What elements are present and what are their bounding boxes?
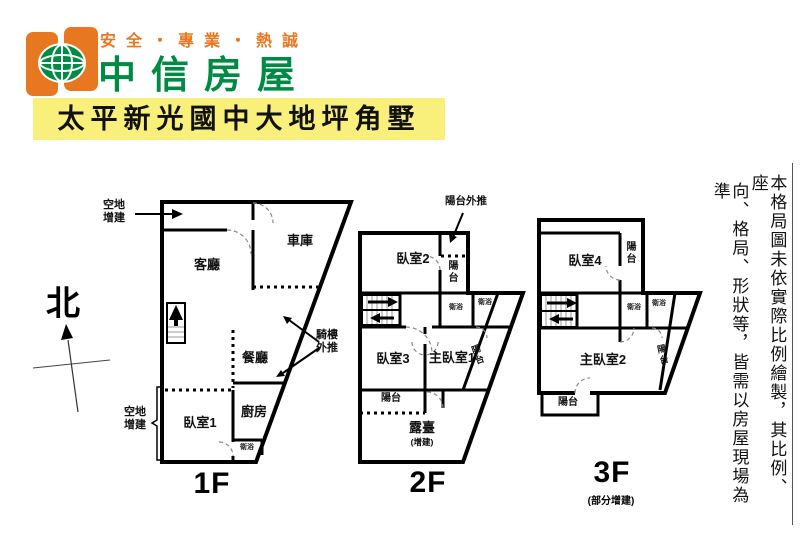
room-label-bedroom2: 臥室2 [381,252,445,266]
room-label-balcony-low: 陽台 [549,397,587,408]
floor-sublabel-3f: (部分增建) [563,492,659,507]
annotation-annex-top: 空地增建 [101,199,127,225]
brand-logo-icon [24,24,108,100]
room-label-bath: 衛浴 [232,444,262,451]
annotation-balcony-push: 陽台外推 [438,195,494,208]
room-label-bedroom1: 臥室1 [168,416,232,430]
room-label-balcony-top: 陽台 [624,241,634,279]
room-label-balcony-low: 陽台 [372,393,410,404]
room-label-bath-b: 衛浴 [646,300,672,307]
room-label-bath-a: 衛浴 [443,304,469,311]
floorplan-3f: 臥室4 陽台 衛浴 衛浴 主臥室2 陽台 陽台 3F (部分增建) [535,210,710,510]
listing-title: 太平新光國中大地坪角墅 [33,98,445,140]
room-label-bedroom4: 臥室4 [553,254,617,268]
listing-title-bar: 太平新光國中大地坪角墅 [33,98,445,140]
room-label-living: 客廳 [176,258,238,272]
annex-bracket [152,387,161,460]
floor-label-3f: 3F [581,456,643,490]
room-label-balcony-top: 陽台 [446,260,456,298]
annotation-arcade-push: 騎樓外推 [314,329,340,355]
floor-label-2f: 2F [397,466,459,500]
disclaimer-column-right: 本格局圖未依實際比例繪製，其比例、座 [748,174,785,506]
disclaimer-column-left: 向、格局、形狀等，皆需以房屋現場為準 [710,182,747,514]
floorplan-1f: 客廳 車庫 餐廳 廚房 臥室1 衛浴 空地增建 空地增建 騎樓外推 1F [95,190,360,515]
annotation-annex-left: 空地增建 [122,406,148,432]
room-label-bath-a: 衛浴 [621,304,647,311]
room-label-bedroom3: 臥室3 [361,352,425,366]
terrace-note: (增建) [391,436,453,448]
room-label-terrace: 露臺 [391,421,453,435]
floor-label-1f: 1F [181,467,243,501]
room-label-master2: 主臥室2 [571,353,635,367]
globe-icon [38,43,86,83]
room-label-garage: 車庫 [269,234,331,248]
brand-name: 中信房屋 [98,44,310,99]
floorplan-2f: 臥室2 陽台外推 陽台 衛浴 衛浴 臥室3 主臥室1 陽台 陽台 露臺 (增建)… [348,192,533,507]
room-label-bath-b: 衛浴 [472,299,498,306]
room-label-kitchen: 廚房 [223,405,285,419]
header: 安全・專業・熱誠 中信房屋 太平新光國中大地坪角墅 [0,0,460,145]
right-border-line [792,163,793,525]
room-label-dining: 餐廳 [224,351,286,365]
